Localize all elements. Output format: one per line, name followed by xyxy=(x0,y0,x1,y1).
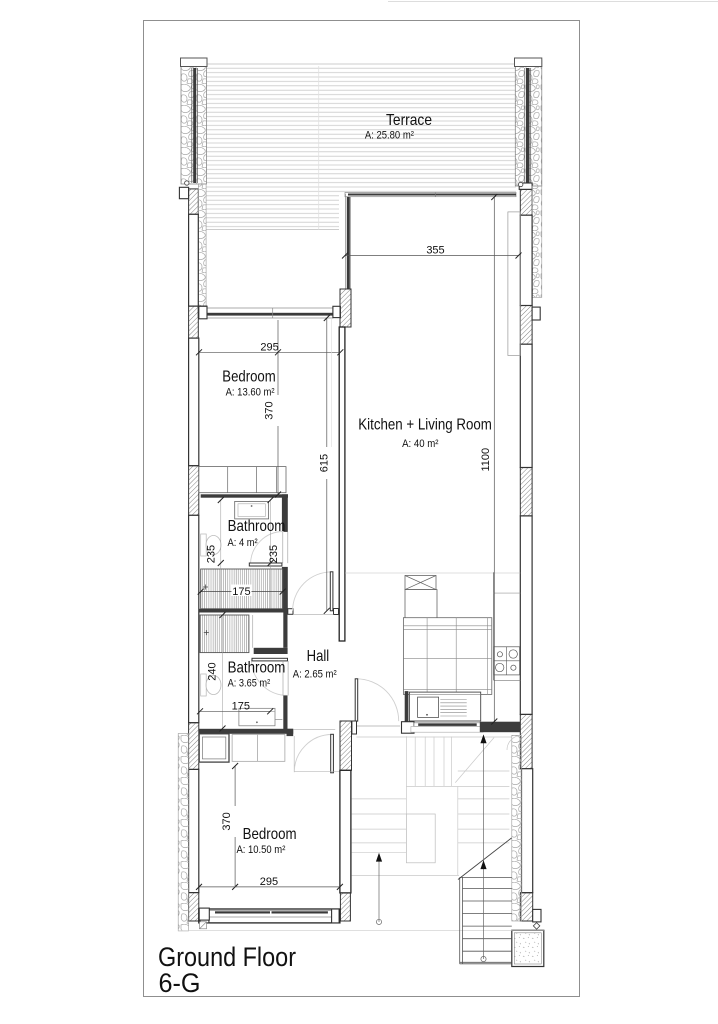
svg-text:1100: 1100 xyxy=(480,448,492,472)
svg-text:Hall: Hall xyxy=(307,648,330,665)
svg-text:A: 40 m²: A: 40 m² xyxy=(402,438,439,450)
svg-text:295: 295 xyxy=(260,341,278,353)
svg-text:370: 370 xyxy=(221,812,233,830)
svg-text:Bedroom: Bedroom xyxy=(222,369,275,386)
svg-text:235: 235 xyxy=(268,545,280,563)
svg-text:175: 175 xyxy=(232,701,250,713)
svg-text:370: 370 xyxy=(264,401,276,419)
svg-text:A: 10.50 m²: A: 10.50 m² xyxy=(236,844,285,856)
svg-text:615: 615 xyxy=(318,454,330,472)
svg-text:6-G: 6-G xyxy=(159,968,201,998)
svg-text:A: 25.80 m²: A: 25.80 m² xyxy=(365,130,414,142)
svg-text:235: 235 xyxy=(206,545,218,563)
svg-text:240: 240 xyxy=(207,662,219,680)
svg-text:Bathroom: Bathroom xyxy=(228,518,286,535)
svg-text:Terrace: Terrace xyxy=(386,112,432,129)
svg-text:175: 175 xyxy=(232,586,250,598)
svg-text:355: 355 xyxy=(426,244,444,256)
svg-text:A: 4 m²: A: 4 m² xyxy=(228,537,258,549)
svg-text:A: 3.65 m²: A: 3.65 m² xyxy=(228,677,271,689)
svg-text:Kitchen + Living Room: Kitchen + Living Room xyxy=(358,417,492,434)
svg-text:Bathroom: Bathroom xyxy=(228,660,286,677)
svg-text:A: 2.65 m²: A: 2.65 m² xyxy=(293,669,337,681)
svg-text:295: 295 xyxy=(260,876,278,888)
svg-text:A: 13.60 m²: A: 13.60 m² xyxy=(226,387,275,399)
svg-text:Bedroom: Bedroom xyxy=(243,826,297,843)
